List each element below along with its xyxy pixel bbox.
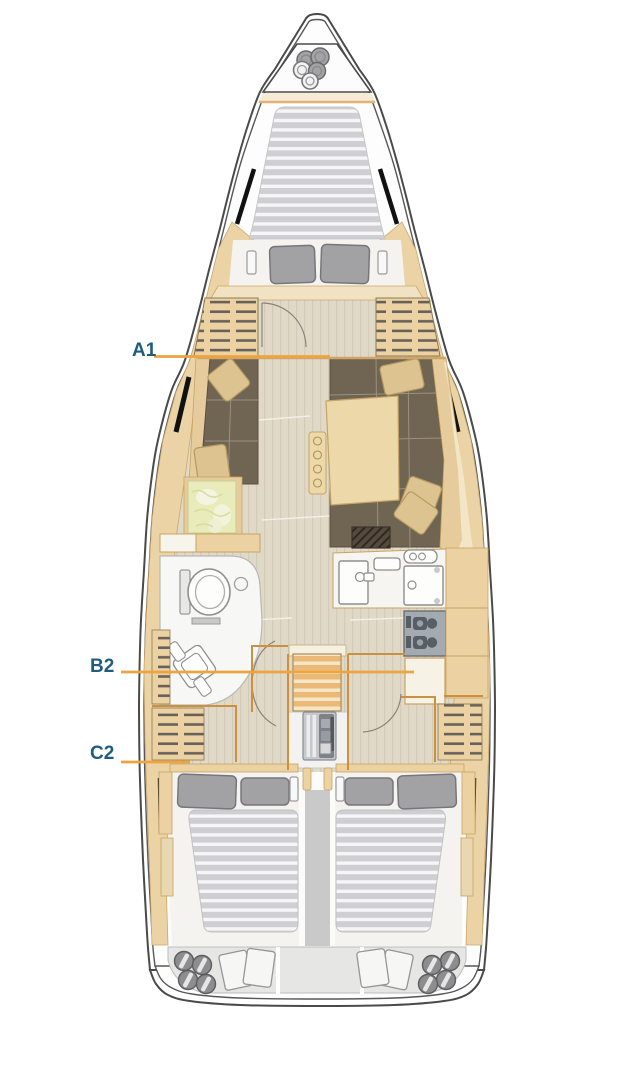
svg-text:B2: B2 [90, 656, 114, 677]
svg-text:C2: C2 [90, 743, 114, 764]
svg-text:A1: A1 [132, 340, 157, 361]
